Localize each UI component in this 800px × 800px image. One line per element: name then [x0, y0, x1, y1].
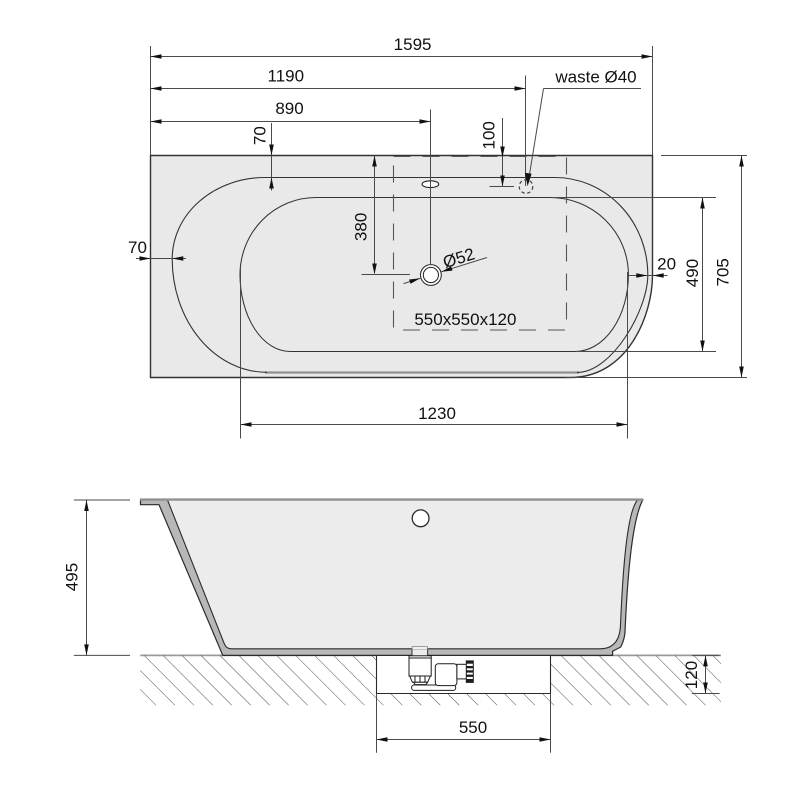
svg-text:495: 495: [63, 563, 82, 591]
svg-text:550: 550: [459, 718, 487, 737]
svg-text:1230: 1230: [418, 404, 456, 423]
svg-text:100: 100: [480, 121, 499, 149]
svg-text:20: 20: [657, 254, 676, 273]
svg-text:550x550x120: 550x550x120: [414, 310, 516, 329]
svg-text:1190: 1190: [268, 67, 305, 86]
svg-text:120: 120: [682, 661, 701, 689]
svg-text:705: 705: [714, 258, 733, 286]
svg-text:70: 70: [251, 126, 270, 145]
svg-text:1595: 1595: [394, 35, 432, 54]
svg-text:490: 490: [683, 259, 702, 287]
svg-text:890: 890: [275, 99, 303, 118]
svg-text:waste Ø40: waste Ø40: [554, 68, 636, 87]
svg-text:70: 70: [128, 238, 147, 257]
svg-text:380: 380: [352, 213, 371, 241]
